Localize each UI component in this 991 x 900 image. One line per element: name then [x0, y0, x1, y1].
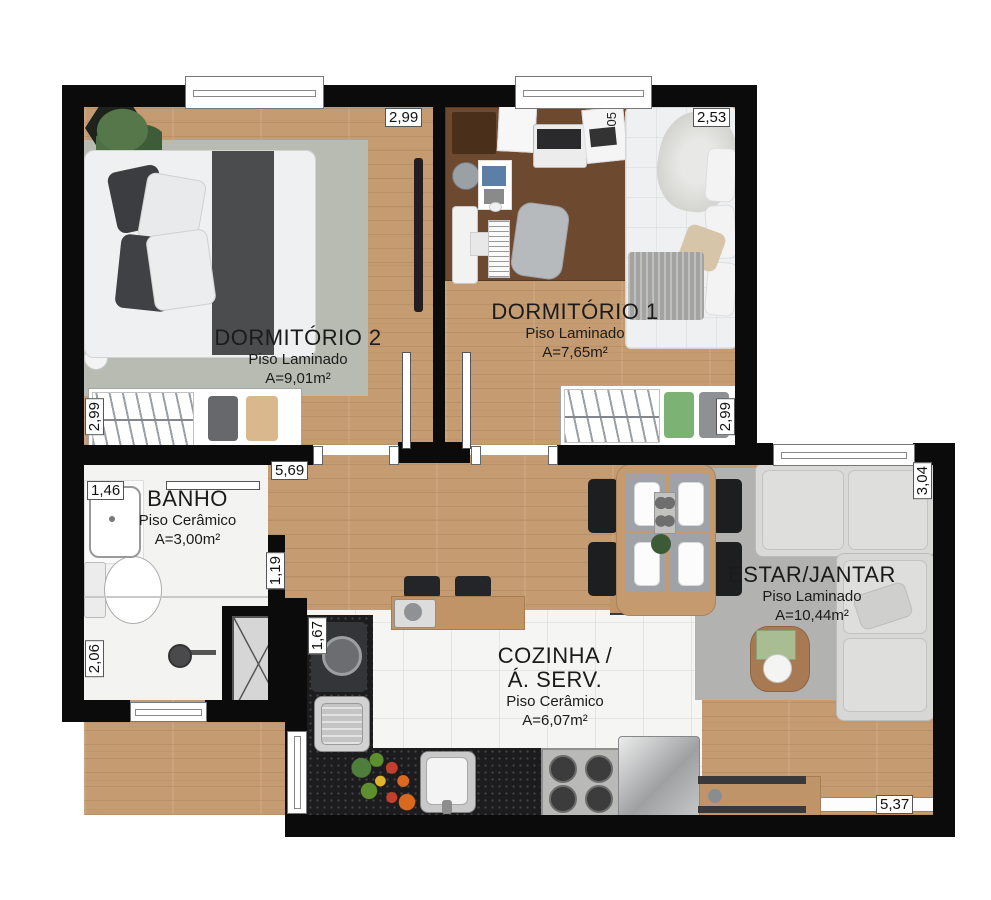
- tv-console-bottom: [698, 806, 806, 813]
- window-frame: [193, 90, 316, 97]
- monitor-stand: [470, 232, 490, 256]
- wall-banho-bottom-right: [205, 700, 285, 722]
- room-name: ESTAR/JANTAR: [712, 563, 912, 587]
- plate: [678, 482, 704, 526]
- room-area: A=6,07m²: [455, 711, 655, 730]
- room-name: DORMITÓRIO 1: [475, 300, 675, 324]
- condiment-tray: [654, 492, 676, 534]
- bar-stool: [455, 576, 491, 598]
- folded-skirt-gray: [208, 396, 238, 441]
- door-jamb: [548, 446, 558, 465]
- room-area: A=9,01m²: [198, 369, 398, 388]
- desk-magazine-photo: [589, 127, 617, 148]
- refrigerator: [618, 736, 700, 820]
- room-area: A=3,00m²: [105, 530, 270, 549]
- room-area: A=7,65m²: [475, 343, 675, 362]
- door-dormitorio1: [462, 352, 471, 449]
- pillow-white: [704, 147, 738, 203]
- dining-chair: [588, 479, 618, 533]
- dimension-banho-width: 1,46: [87, 481, 124, 500]
- wall-dorm1-bottom: [557, 445, 757, 465]
- label-cozinha: COZINHA / Á. SERV. Piso Cerâmico A=6,07m…: [455, 644, 655, 730]
- room-name: DORMITÓRIO 2: [198, 326, 398, 350]
- dining-chair: [588, 542, 618, 596]
- dimension-bottom-width: 5,37: [876, 795, 913, 814]
- office-chair: [509, 201, 571, 282]
- wardrobe-hangers: [564, 389, 660, 443]
- window-frame: [135, 709, 203, 716]
- wall-tv: [414, 158, 423, 312]
- door-dormitorio2: [402, 352, 411, 449]
- sofa-cushion: [843, 638, 927, 712]
- wall-between-bedrooms: [433, 107, 445, 447]
- window-dorm2: [185, 76, 324, 109]
- window-frame: [523, 90, 645, 97]
- stove-burner: [585, 755, 613, 783]
- dimension-cozinha-depth: 1,67: [308, 617, 327, 654]
- plate: [678, 542, 704, 586]
- console-decor: [708, 789, 722, 803]
- wall-estar-top-left: [757, 443, 773, 465]
- desk-magazine-2-photo: [482, 166, 506, 186]
- dining-chair: [712, 479, 742, 533]
- label-dormitorio2: DORMITÓRIO 2 Piso Laminado A=9,01m²: [198, 326, 398, 388]
- sofa-cushion: [762, 470, 844, 550]
- wardrobe-rail: [565, 416, 659, 418]
- wall-banho-bottom-left: [62, 700, 130, 722]
- floor-plan: 05: [0, 0, 991, 900]
- shower-head: [168, 644, 192, 668]
- room-area: A=10,44m²: [712, 606, 912, 625]
- toilet-tank: [84, 562, 106, 618]
- toilet-bowl: [104, 556, 162, 624]
- dimension-hall-width: 5,69: [271, 461, 308, 480]
- wall-top-middle: [322, 85, 515, 107]
- label-banho: BANHO Piso Cerâmico A=3,00m²: [105, 487, 270, 549]
- window-banho: [130, 702, 207, 722]
- folded-shirt-beige: [246, 396, 278, 441]
- dimension-banho-door: 1,19: [266, 552, 285, 589]
- room-name: Á. SERV.: [455, 668, 655, 692]
- window-frame: [294, 736, 301, 809]
- door-jamb: [389, 446, 399, 465]
- label-dormitorio1: DORMITÓRIO 1 Piso Laminado A=7,65m²: [475, 300, 675, 362]
- room-floor-type: Piso Laminado: [198, 350, 398, 369]
- stove-burner: [585, 785, 613, 813]
- label-estar: ESTAR/JANTAR Piso Laminado A=10,44m²: [712, 563, 912, 625]
- kitchen-faucet: [442, 800, 452, 814]
- washing-machine-drum: [322, 636, 362, 676]
- coffee-table-bowl: [763, 654, 792, 683]
- bar-appliance-drum: [404, 603, 422, 621]
- mouse: [489, 202, 502, 212]
- laptop-keys: [537, 129, 581, 149]
- desk-paper: [497, 103, 537, 153]
- folded-shirt-green: [664, 392, 694, 438]
- door-jamb: [313, 446, 323, 465]
- window-frame: [781, 452, 907, 459]
- door-jamb: [471, 446, 481, 465]
- tv-console-top: [698, 776, 806, 784]
- window-dorm1: [515, 76, 652, 109]
- desk-folder: [452, 112, 496, 154]
- wardrobe-hangers: [92, 392, 194, 446]
- centerpiece-bowl: [651, 534, 671, 554]
- pillow-white: [145, 228, 217, 312]
- window-estar: [773, 444, 915, 466]
- wall-dorm1-right: [735, 85, 757, 465]
- room-name: COZINHA /: [455, 644, 655, 668]
- dimension-dorm1-depth: 2,99: [716, 398, 735, 435]
- wardrobe-rail: [93, 419, 193, 421]
- wall-bottom: [285, 815, 955, 837]
- room-floor-type: Piso Laminado: [475, 324, 675, 343]
- bar-stool: [404, 576, 440, 598]
- dimension-banho-depth: 2,06: [85, 640, 104, 677]
- room-floor-type: Piso Cerâmico: [105, 511, 270, 530]
- laundry-sink-basin: [321, 703, 363, 745]
- room-name: BANHO: [105, 487, 270, 511]
- vegetable-basket: [350, 748, 426, 814]
- window-cozinha: [287, 731, 307, 814]
- stove-burner: [549, 785, 577, 813]
- desk-magazine-number: 05: [604, 112, 619, 126]
- room-floor-type: Piso Cerâmico: [455, 692, 655, 711]
- room-floor-type: Piso Laminado: [712, 587, 912, 606]
- dimension-dorm1-width: 2,53: [693, 108, 730, 127]
- wall-estar-right: [933, 443, 955, 837]
- desk-lamp: [452, 162, 480, 190]
- dimension-dorm2-depth: 2,99: [85, 398, 104, 435]
- dimension-dorm2-width: 2,99: [385, 108, 422, 127]
- stove-burner: [549, 755, 577, 783]
- dimension-estar-depth: 3,04: [913, 462, 932, 499]
- shower-divider: [84, 596, 268, 598]
- keyboard: [488, 220, 510, 278]
- kitchen-sink-basin: [426, 757, 468, 805]
- wall-left: [62, 85, 84, 722]
